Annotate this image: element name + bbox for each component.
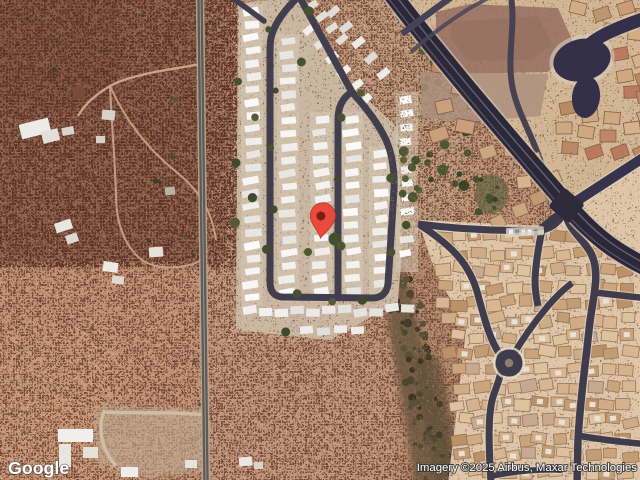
svg-text:Imagery ©2025 Airbus, Maxar Te: Imagery ©2025 Airbus, Maxar Technologies — [417, 462, 638, 474]
svg-text:Google: Google — [8, 458, 69, 478]
